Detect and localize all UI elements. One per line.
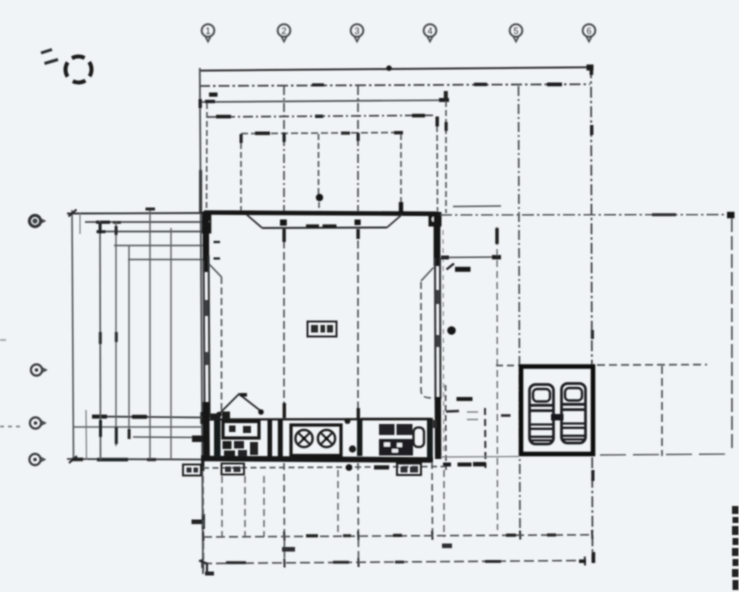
svg-text:3: 3 bbox=[354, 26, 359, 36]
svg-text:1: 1 bbox=[205, 26, 210, 36]
svg-text:2: 2 bbox=[281, 26, 286, 36]
svg-text:4: 4 bbox=[427, 26, 432, 36]
svg-text:5: 5 bbox=[513, 26, 518, 36]
svg-text:6: 6 bbox=[586, 26, 591, 36]
